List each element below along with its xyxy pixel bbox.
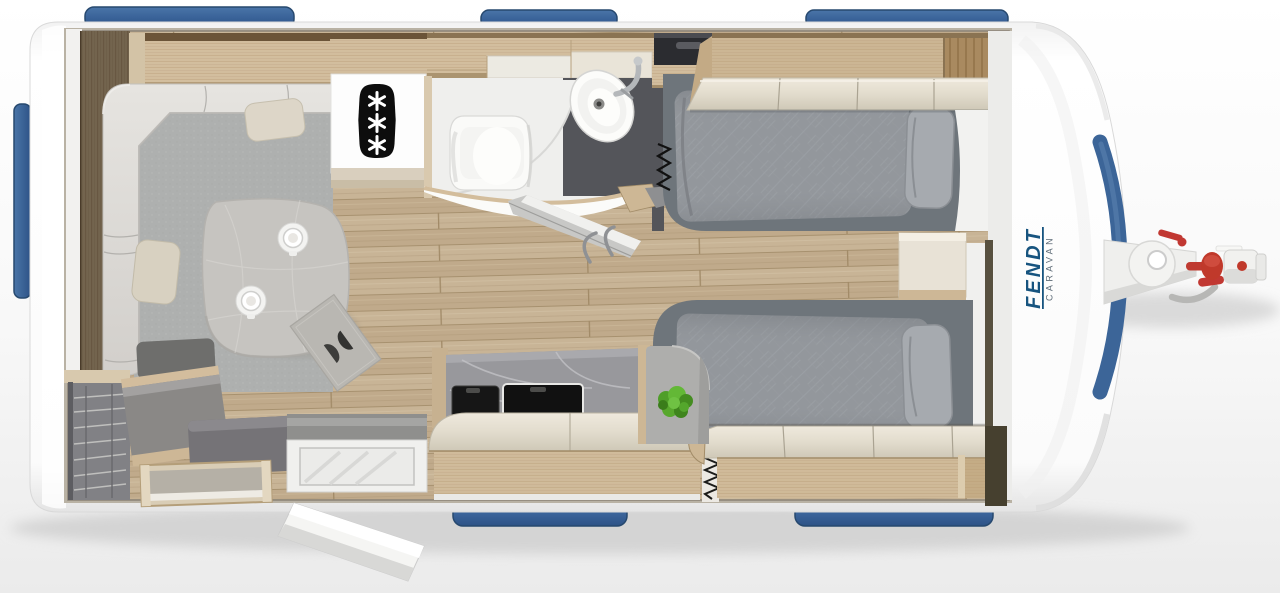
svg-text:FENDT: FENDT: [1023, 227, 1045, 309]
svg-text:CARAVAN: CARAVAN: [1045, 235, 1055, 301]
